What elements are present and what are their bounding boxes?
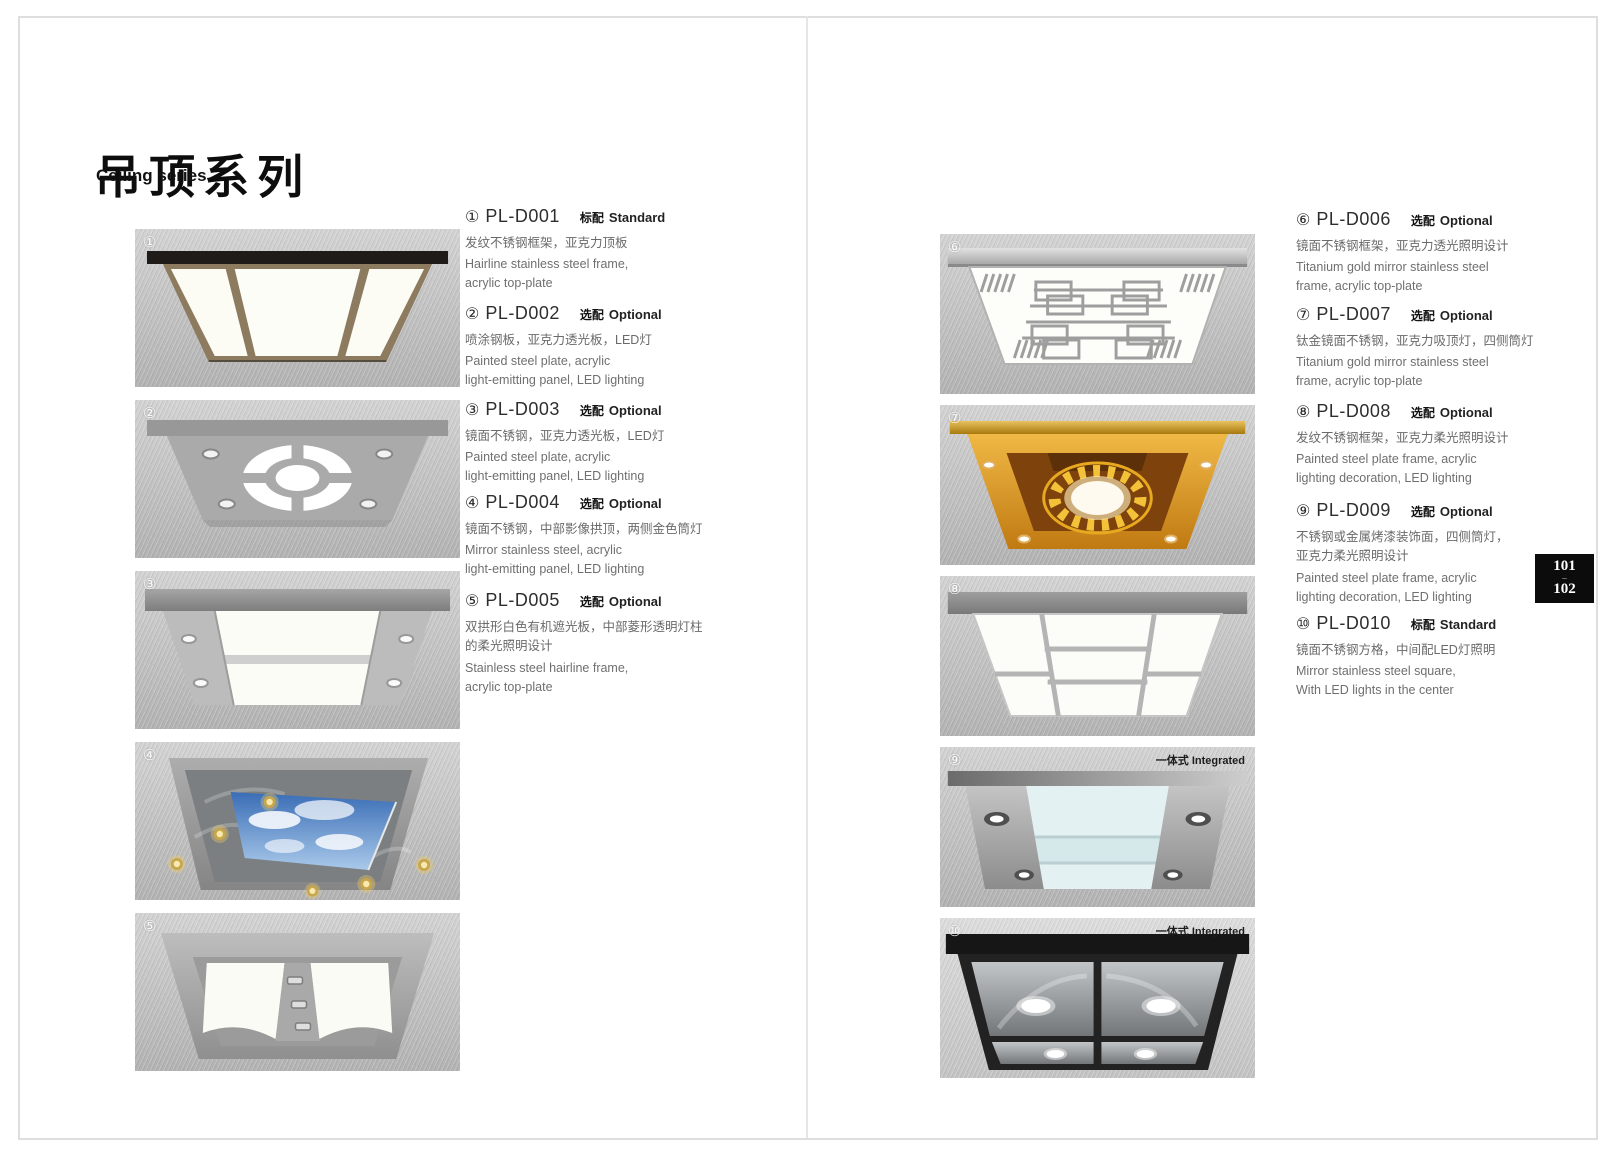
desc-zh: 镜面不锈钢框架，亚克力透光照明设计 xyxy=(1296,237,1602,256)
config-tag-en: Optional xyxy=(609,403,662,418)
catalog-page: { "page": { "title_zh": "吊顶系列", "title_e… xyxy=(0,0,1602,1156)
ceiling-render-6 xyxy=(940,234,1255,394)
image-index-badge: ⑥ xyxy=(948,238,961,256)
desc-zh: 发纹不锈钢框架，亚克力顶板 xyxy=(465,234,777,253)
config-tag-en: Optional xyxy=(609,496,662,511)
product-heading: ⑨ PL-D009 选配 Optional xyxy=(1296,500,1602,521)
product-heading: ③ PL-D003 选配 Optional xyxy=(465,399,777,420)
ceiling-render-7 xyxy=(940,405,1255,565)
product-code: PL-D004 xyxy=(485,492,560,513)
config-tag-en: Optional xyxy=(1440,504,1493,519)
page-subtitle: Ceiling series xyxy=(96,166,207,186)
ceiling-render-5 xyxy=(135,913,460,1071)
product-index: ⑧ xyxy=(1296,402,1310,422)
config-tag-zh: 选配 xyxy=(580,495,604,512)
config-tag-zh: 标配 xyxy=(580,209,604,226)
product-index: ⑥ xyxy=(1296,210,1310,230)
desc-zh: 镜面不锈钢，亚克力透光板，LED灯 xyxy=(465,427,777,446)
product-code: PL-D002 xyxy=(485,303,560,324)
product-code: PL-D009 xyxy=(1316,500,1391,521)
product-heading: ⑧ PL-D008 选配 Optional xyxy=(1296,401,1602,422)
product-index: ⑦ xyxy=(1296,305,1310,325)
integrated-label: 一体式 Integrated xyxy=(1156,752,1245,768)
desc-en: Titanium gold mirror stainless steel fra… xyxy=(1296,258,1602,296)
product-index: ① xyxy=(465,207,479,227)
ceiling-render-4 xyxy=(135,742,460,900)
product-image-pl-d003: ③ xyxy=(135,571,460,729)
product-heading: ② PL-D002 选配 Optional xyxy=(465,303,777,324)
product-desc-pl-d003: ③ PL-D003 选配 Optional 镜面不锈钢，亚克力透光板，LED灯 … xyxy=(465,399,777,486)
product-index: ④ xyxy=(465,493,479,513)
product-image-pl-d001: ① xyxy=(135,229,460,387)
config-tag-zh: 选配 xyxy=(1411,404,1435,421)
image-index-badge: ⑨ xyxy=(948,751,961,769)
desc-zh: 喷涂钢板，亚克力透光板，LED灯 xyxy=(465,331,777,350)
product-desc-pl-d004: ④ PL-D004 选配 Optional 镜面不锈钢，中部影像拱顶，两侧金色筒… xyxy=(465,492,777,579)
config-tag-en: Optional xyxy=(1440,405,1493,420)
product-image-pl-d002: ② xyxy=(135,400,460,558)
product-image-pl-d005: ⑤ xyxy=(135,913,460,1071)
config-tag-zh: 选配 xyxy=(580,306,604,323)
image-index-badge: ⑧ xyxy=(948,580,961,598)
image-index-badge: ⑤ xyxy=(143,917,156,935)
config-tag-zh: 选配 xyxy=(580,593,604,610)
config-tag-zh: 标配 xyxy=(1411,616,1435,633)
product-image-pl-d006: ⑥ xyxy=(940,234,1255,394)
config-tag-zh: 选配 xyxy=(1411,307,1435,324)
desc-zh: 钛金镜面不锈钢，亚克力吸顶灯，四侧筒灯 xyxy=(1296,332,1602,351)
image-index-badge: ① xyxy=(143,233,156,251)
config-tag-zh: 选配 xyxy=(1411,212,1435,229)
ceiling-render-9 xyxy=(940,747,1255,907)
image-index-badge: ③ xyxy=(143,575,156,593)
product-index: ② xyxy=(465,304,479,324)
product-image-pl-d004: ④ xyxy=(135,742,460,900)
product-code: PL-D008 xyxy=(1316,401,1391,422)
product-image-pl-d007: ⑦ xyxy=(940,405,1255,565)
product-code: PL-D007 xyxy=(1316,304,1391,325)
product-image-pl-d008: ⑧ xyxy=(940,576,1255,736)
image-index-badge: ④ xyxy=(143,746,156,764)
config-tag-zh: 选配 xyxy=(1411,503,1435,520)
product-heading: ⑤ PL-D005 选配 Optional xyxy=(465,590,777,611)
product-desc-pl-d010: ⑩ PL-D010 标配 Standard 镜面不锈钢方格，中间配LED灯照明 … xyxy=(1296,613,1602,700)
ceiling-render-1 xyxy=(135,229,460,387)
product-desc-pl-d001: ① PL-D001 标配 Standard 发纹不锈钢框架，亚克力顶板 Hair… xyxy=(465,206,777,293)
product-desc-pl-d006: ⑥ PL-D006 选配 Optional 镜面不锈钢框架，亚克力透光照明设计 … xyxy=(1296,209,1602,296)
desc-en: Mirror stainless steel square, With LED … xyxy=(1296,662,1602,700)
desc-en: Painted steel plate frame, acrylic light… xyxy=(1296,450,1602,488)
product-index: ③ xyxy=(465,400,479,420)
ceiling-render-10 xyxy=(940,918,1255,1078)
image-index-badge: ⑩ xyxy=(948,922,961,940)
product-heading: ⑩ PL-D010 标配 Standard xyxy=(1296,613,1602,634)
product-code: PL-D001 xyxy=(485,206,560,227)
integrated-label: 一体式 Integrated xyxy=(1156,923,1245,939)
product-heading: ⑦ PL-D007 选配 Optional xyxy=(1296,304,1602,325)
product-code: PL-D003 xyxy=(485,399,560,420)
desc-en: Hairline stainless steel frame, acrylic … xyxy=(465,255,777,293)
product-code: PL-D010 xyxy=(1316,613,1391,634)
desc-zh: 发纹不锈钢框架，亚克力柔光照明设计 xyxy=(1296,429,1602,448)
product-image-pl-d009: ⑨ 一体式 Integrated xyxy=(940,747,1255,907)
desc-en: Painted steel plate, acrylic light-emitt… xyxy=(465,448,777,486)
product-heading: ⑥ PL-D006 选配 Optional xyxy=(1296,209,1602,230)
product-desc-pl-d005: ⑤ PL-D005 选配 Optional 双拱形白色有机遮光板，中部菱形透明灯… xyxy=(465,590,777,696)
desc-en: Painted steel plate, acrylic light-emitt… xyxy=(465,352,777,390)
product-image-pl-d010: ⑩ 一体式 Integrated xyxy=(940,918,1255,1078)
desc-zh: 镜面不锈钢方格，中间配LED灯照明 xyxy=(1296,641,1602,660)
page-divider xyxy=(806,16,808,1138)
page-number-badge: 101 – 102 xyxy=(1535,554,1594,603)
ceiling-render-2 xyxy=(135,400,460,558)
config-tag-en: Standard xyxy=(609,210,665,225)
desc-zh: 双拱形白色有机遮光板，中部菱形透明灯柱 的柔光照明设计 xyxy=(465,618,777,657)
product-heading: ① PL-D001 标配 Standard xyxy=(465,206,777,227)
product-desc-pl-d008: ⑧ PL-D008 选配 Optional 发纹不锈钢框架，亚克力柔光照明设计 … xyxy=(1296,401,1602,488)
config-tag-en: Optional xyxy=(1440,308,1493,323)
desc-en: Stainless steel hairline frame, acrylic … xyxy=(465,659,777,697)
ceiling-render-8 xyxy=(940,576,1255,736)
image-index-badge: ⑦ xyxy=(948,409,961,427)
desc-en: Mirror stainless steel, acrylic light-em… xyxy=(465,541,777,579)
config-tag-en: Standard xyxy=(1440,617,1496,632)
product-code: PL-D005 xyxy=(485,590,560,611)
image-index-badge: ② xyxy=(143,404,156,422)
config-tag-zh: 选配 xyxy=(580,402,604,419)
config-tag-en: Optional xyxy=(609,307,662,322)
product-heading: ④ PL-D004 选配 Optional xyxy=(465,492,777,513)
page-number-bottom: 102 xyxy=(1535,581,1594,598)
ceiling-render-3 xyxy=(135,571,460,729)
product-desc-pl-d002: ② PL-D002 选配 Optional 喷涂钢板，亚克力透光板，LED灯 P… xyxy=(465,303,777,390)
product-index: ⑤ xyxy=(465,591,479,611)
product-index: ⑨ xyxy=(1296,501,1310,521)
config-tag-en: Optional xyxy=(1440,213,1493,228)
product-index: ⑩ xyxy=(1296,614,1310,634)
desc-zh: 镜面不锈钢，中部影像拱顶，两侧金色筒灯 xyxy=(465,520,777,539)
product-code: PL-D006 xyxy=(1316,209,1391,230)
config-tag-en: Optional xyxy=(609,594,662,609)
desc-en: Titanium gold mirror stainless steel fra… xyxy=(1296,353,1602,391)
product-desc-pl-d007: ⑦ PL-D007 选配 Optional 钛金镜面不锈钢，亚克力吸顶灯，四侧筒… xyxy=(1296,304,1602,391)
